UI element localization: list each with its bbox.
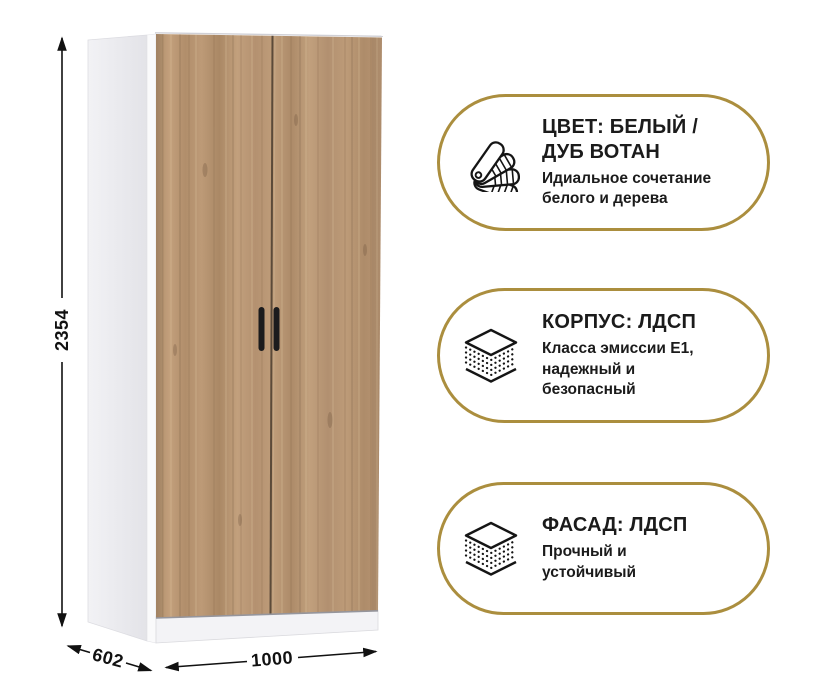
layered-board-icon: [462, 520, 520, 578]
width-arrow-right: [298, 652, 376, 658]
width-dimension-label: 1000: [250, 647, 293, 670]
feature-subtitle-line: Прочный и: [542, 542, 741, 563]
feature-title: ФАСАД: ЛДСП: [542, 513, 741, 538]
wardrobe-side-panel: [88, 34, 156, 643]
feature-badge-color: ЦВЕТ: БЕЛЫЙ / ДУБ ВОТАН Идиальное сочета…: [437, 94, 770, 231]
feature-subtitle-line: Класса эмиссии Е1,: [542, 339, 741, 360]
feature-subtitle-line: устойчивый: [542, 563, 741, 584]
wardrobe-rendering: 2354 602 1000: [0, 0, 430, 700]
feature-subtitle-line: надежный и: [542, 360, 741, 381]
feature-title: КОРПУС: ЛДСП: [542, 310, 741, 335]
color-swatch-fan-icon: [462, 134, 520, 192]
feature-title-line: КОРПУС: ЛДСП: [542, 310, 741, 335]
feature-subtitle-line: безопасный: [542, 380, 741, 401]
left-door-handle-icon: [259, 307, 265, 351]
feature-title-line: ФАСАД: ЛДСП: [542, 513, 741, 538]
depth-arrow-right: [126, 663, 151, 671]
feature-subtitle: Класса эмиссии Е1, надежный и безопасный: [542, 339, 741, 401]
feature-subtitle-line: белого и дерева: [542, 189, 741, 210]
feature-title-line: ЦВЕТ: БЕЛЫЙ /: [542, 115, 741, 140]
feature-subtitle: Прочный и устойчивый: [542, 542, 741, 583]
feature-badge-body: КОРПУС: ЛДСП Класса эмиссии Е1, надежный…: [437, 288, 770, 423]
layered-board-icon: [462, 327, 520, 385]
feature-subtitle: Идиальное сочетание белого и дерева: [542, 169, 741, 210]
feature-title-line: ДУБ ВОТАН: [542, 140, 741, 165]
depth-dimension-label: 602: [90, 644, 126, 671]
product-infographic: 2354 602 1000: [0, 0, 816, 700]
feature-subtitle-line: Идиальное сочетание: [542, 169, 741, 190]
right-door-handle-icon: [274, 307, 280, 351]
height-dimension-label: 2354: [52, 309, 72, 351]
feature-badge-facade: ФАСАД: ЛДСП Прочный и устойчивый: [437, 482, 770, 615]
wardrobe-doors: [150, 28, 390, 628]
width-arrow-left: [166, 662, 247, 668]
depth-arrow-left: [68, 646, 90, 653]
feature-title: ЦВЕТ: БЕЛЫЙ / ДУБ ВОТАН: [542, 115, 741, 165]
